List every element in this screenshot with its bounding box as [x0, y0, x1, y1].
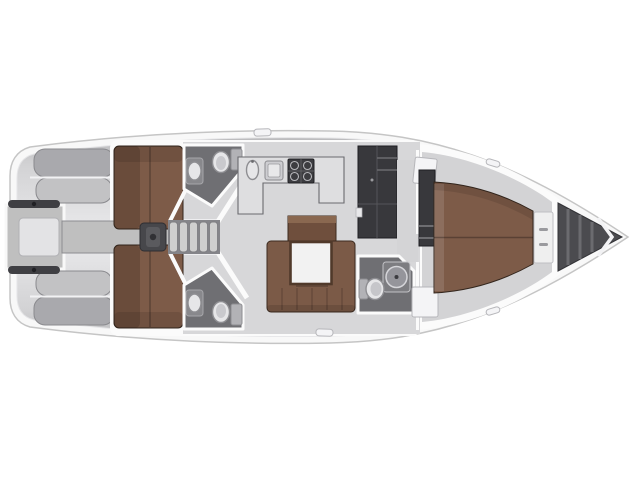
swim-platform: [5, 204, 65, 270]
floorplan-canvas: [0, 0, 640, 480]
forward-cabin-lockers: [419, 170, 435, 246]
salon-sideboard: [288, 216, 336, 241]
cockpit-bench-starboard-inner: [36, 271, 112, 296]
cockpit-bench-starboard-outer: [34, 297, 114, 325]
cleat-starboard-mid: [316, 329, 333, 337]
bow-cabinet: [534, 212, 553, 263]
yacht-layout-plan: [0, 0, 640, 480]
forward-shower: [383, 262, 410, 292]
galley-oval-sink: [247, 160, 259, 179]
forward-toilet: [359, 279, 384, 300]
companionway-steps: [170, 222, 218, 252]
steering-wheel-port: [8, 200, 60, 208]
salon-table: [291, 242, 332, 287]
galley-stove: [288, 159, 314, 183]
galley-square-sink: [265, 161, 283, 180]
sink-port: [186, 158, 203, 184]
sink-starboard: [186, 290, 203, 316]
forward-head: [358, 256, 414, 313]
nav-lockers: [356, 146, 397, 238]
companionway: [140, 220, 220, 254]
cleat-port-mid: [254, 129, 271, 137]
cockpit-bench-port-outer: [34, 149, 114, 177]
anchor-locker: [556, 200, 622, 274]
cockpit-bench-port-inner: [36, 178, 112, 203]
steering-wheel-starboard: [8, 266, 60, 274]
